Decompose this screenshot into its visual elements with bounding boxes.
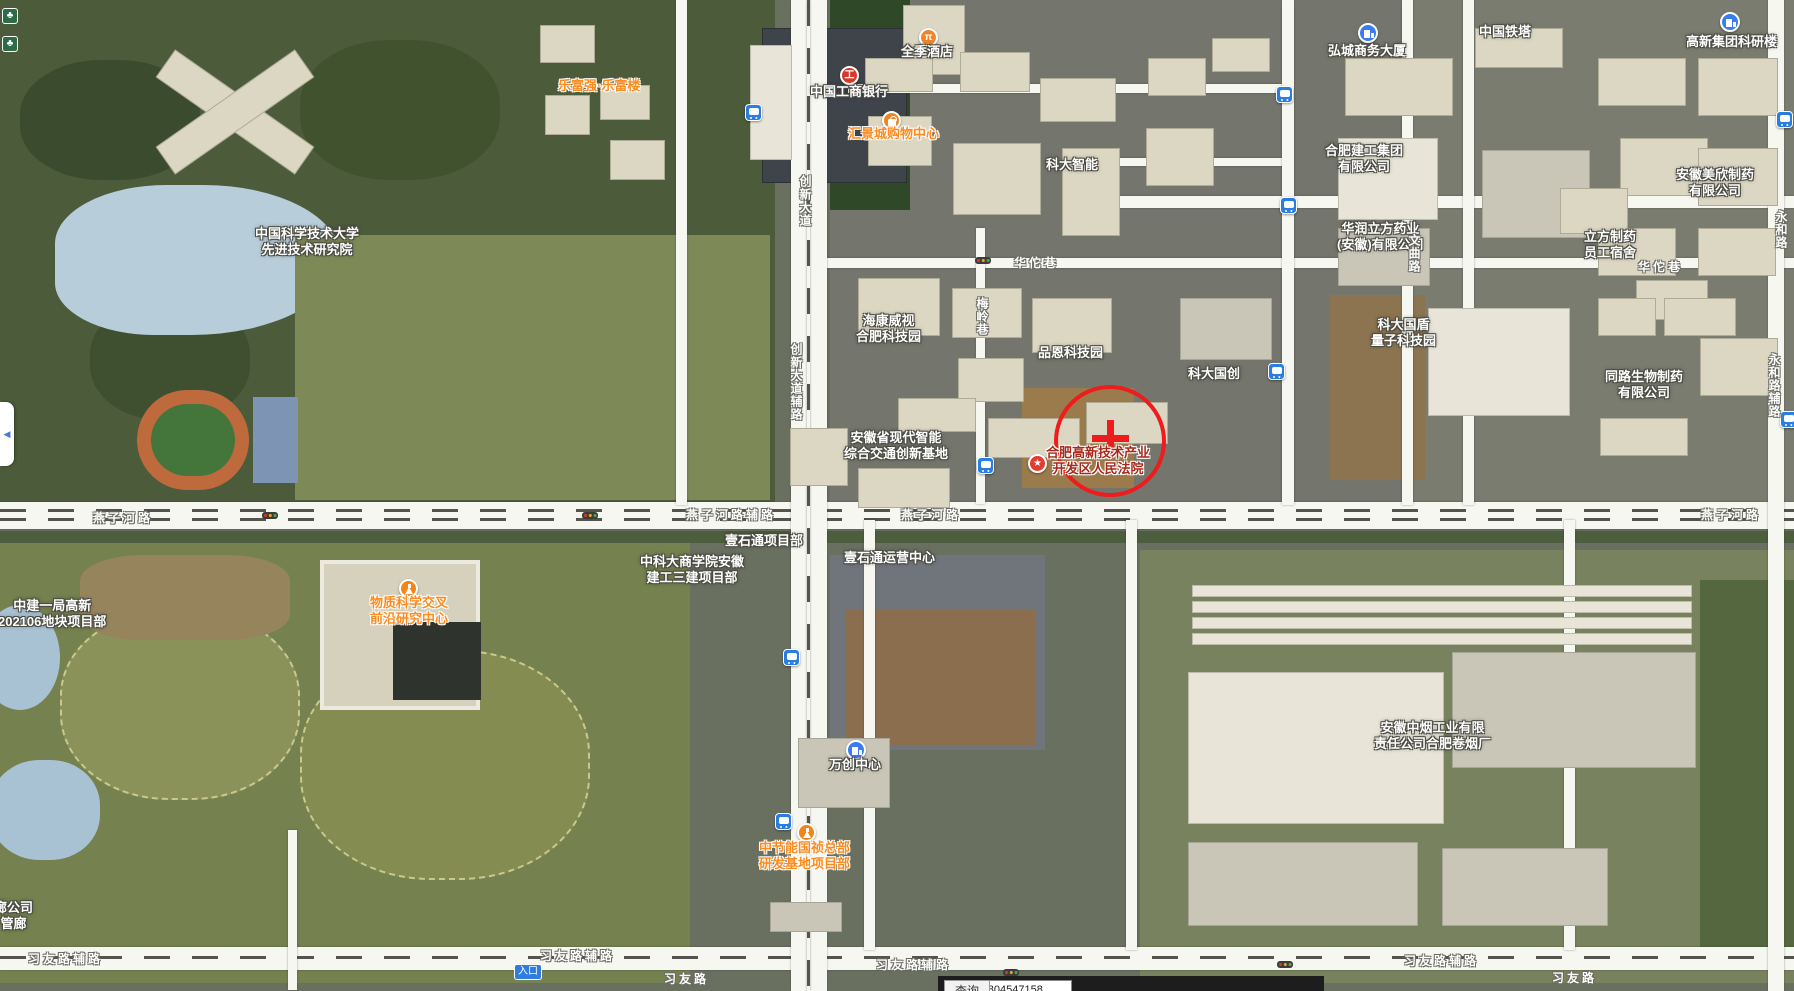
road-label: 燕子河路辅路 bbox=[686, 506, 776, 523]
traffic-light-icon bbox=[1003, 969, 1019, 976]
matter-science-core bbox=[393, 622, 481, 700]
poi-label: 壹石通项目部 bbox=[725, 533, 803, 549]
building bbox=[858, 468, 950, 508]
road-label: 华佗巷 bbox=[1014, 254, 1059, 271]
terrain-trees-strip bbox=[0, 531, 1794, 543]
poi-label: 合肥建工集团 有限公司 bbox=[1325, 143, 1403, 174]
road-label: 创新大道 bbox=[797, 175, 814, 227]
building bbox=[1560, 188, 1628, 234]
road-label: 梅岭巷 bbox=[974, 297, 991, 336]
factory-building bbox=[1442, 848, 1608, 926]
road-label: 永和路 bbox=[1773, 210, 1790, 249]
poi-label: 汇景城购物中心 bbox=[848, 126, 939, 142]
building bbox=[1600, 418, 1688, 456]
building bbox=[610, 140, 665, 180]
building-poi-icon[interactable] bbox=[1720, 12, 1740, 32]
road-label: 燕子河路 bbox=[901, 506, 961, 523]
building bbox=[1598, 58, 1686, 106]
poi-label: 立方制药 员工宿舍 bbox=[1584, 229, 1636, 260]
poi-label: 安徽省现代智能 综合交通创新基地 bbox=[844, 430, 948, 461]
building bbox=[798, 738, 890, 808]
building bbox=[1698, 58, 1778, 116]
bus-stop-icon[interactable] bbox=[1268, 363, 1285, 380]
traffic-light-icon bbox=[582, 512, 598, 519]
bus-stop-icon[interactable] bbox=[783, 649, 800, 666]
building bbox=[1664, 298, 1736, 336]
building bbox=[790, 428, 848, 486]
poi-label: 科大智能 bbox=[1046, 157, 1098, 173]
road-label: 习友路辅路 bbox=[540, 947, 615, 964]
road-label: 习友路辅路 bbox=[876, 956, 951, 973]
panel-collapse-button[interactable]: ◀ bbox=[0, 402, 14, 466]
poi-label: 物质科学交叉 前沿研究中心 bbox=[370, 595, 448, 626]
poi-label: 科大国盾 量子科技园 bbox=[1371, 317, 1436, 348]
bus-stop-icon[interactable] bbox=[977, 457, 994, 474]
poi-label: 中科大商学院安徽 建工三建项目部 bbox=[640, 554, 744, 585]
traffic-light-icon bbox=[1277, 961, 1293, 968]
poi-label: 中国科学技术大学 先进技术研究院 bbox=[255, 226, 359, 257]
road-label: 习友路 bbox=[1552, 969, 1597, 986]
building bbox=[1345, 58, 1453, 116]
traffic-light-icon bbox=[262, 512, 278, 519]
warehouse-row bbox=[1192, 601, 1692, 613]
poi-label: 中建一局高新 202106地块项目部 bbox=[0, 598, 106, 629]
park-dirt bbox=[80, 555, 290, 640]
poi-label: 中节能国祯总部 研发基地项目部 bbox=[759, 840, 850, 871]
poi-label: 壹石通运营中心 bbox=[844, 550, 935, 566]
poi-label: 弘城商务大厦 bbox=[1328, 43, 1406, 59]
query-button[interactable]: 查询 bbox=[944, 980, 990, 991]
building bbox=[958, 358, 1024, 402]
poi-label: 万创中心 bbox=[829, 757, 881, 773]
bus-stop-icon[interactable] bbox=[1276, 86, 1293, 103]
building bbox=[1598, 298, 1656, 336]
coordinate-bar: 经度 纬度 查询 bbox=[938, 976, 1324, 991]
building-poi-icon[interactable] bbox=[1358, 23, 1378, 43]
road-label: 习友路辅路 bbox=[28, 950, 103, 967]
bus-stop-icon[interactable] bbox=[745, 104, 762, 121]
road-label: 文曲路 bbox=[1406, 234, 1423, 273]
tree-poi-icon[interactable]: ♣ bbox=[2, 36, 18, 52]
track-infield bbox=[151, 404, 235, 476]
building bbox=[540, 25, 595, 63]
poi-label: 安徽中烟工业有限 责任公司合肥卷烟厂 bbox=[1374, 720, 1491, 751]
road-mid2 bbox=[1463, 0, 1474, 505]
terrain-lake bbox=[0, 760, 100, 860]
entrance-tag[interactable]: 入口 bbox=[514, 964, 542, 980]
bank-icon[interactable]: 工 bbox=[840, 66, 859, 85]
traffic-light-icon bbox=[975, 257, 991, 264]
building bbox=[960, 52, 1030, 92]
map-canvas[interactable]: π 工 ★ ♣ ♣ 入口 中国科学技术大学 先进技术研究院 全季酒店 中国工商银… bbox=[0, 0, 1794, 991]
poi-label: 同路生物制药 有限公司 bbox=[1605, 369, 1683, 400]
bus-stop-icon[interactable] bbox=[775, 813, 792, 830]
terrain-field bbox=[295, 235, 770, 500]
building bbox=[1698, 228, 1776, 276]
road-label: 习友路辅路 bbox=[1404, 952, 1479, 969]
warehouse-row bbox=[1192, 617, 1692, 629]
road-label: 华佗巷 bbox=[1638, 258, 1683, 275]
building bbox=[1146, 128, 1214, 186]
poi-label: 中国工商银行 bbox=[810, 84, 888, 100]
building bbox=[545, 95, 590, 135]
warehouse-row bbox=[1192, 585, 1692, 597]
poi-label: 高新集团科研楼 bbox=[1686, 34, 1777, 50]
bus-stop-icon[interactable] bbox=[1280, 197, 1297, 214]
poi-label: 安徽美欣制药 有限公司 bbox=[1676, 167, 1754, 198]
building bbox=[1148, 58, 1206, 96]
building bbox=[1180, 298, 1272, 360]
bus-stop-icon[interactable] bbox=[1776, 111, 1793, 128]
building bbox=[1428, 308, 1570, 416]
road-minor-v bbox=[676, 0, 687, 505]
road-label: 燕子河路 bbox=[93, 509, 153, 526]
poi-label: 乐富强·乐富楼 bbox=[558, 78, 640, 94]
building bbox=[1040, 78, 1116, 122]
building bbox=[898, 398, 976, 432]
poi-label: 海康威视 合肥科技园 bbox=[856, 313, 921, 344]
factory-building bbox=[1188, 842, 1418, 926]
building bbox=[1212, 38, 1270, 72]
building bbox=[750, 45, 792, 160]
road-label: 习友路 bbox=[664, 970, 709, 987]
terrain-trees bbox=[300, 40, 500, 180]
court-star-icon[interactable]: ★ bbox=[1028, 454, 1047, 473]
tree-poi-icon[interactable]: ♣ bbox=[2, 8, 18, 24]
poi-label: 中国铁塔 bbox=[1479, 24, 1531, 40]
poi-label: 品恩科技园 bbox=[1038, 345, 1103, 361]
road-park-edge bbox=[288, 830, 297, 990]
building bbox=[953, 143, 1041, 215]
road-east1 bbox=[1282, 0, 1294, 505]
warehouse-row bbox=[1192, 633, 1692, 645]
poi-label: 全季酒店 bbox=[901, 44, 953, 60]
road-label: 永和路辅路 bbox=[1766, 353, 1783, 418]
poi-label-clipped: 廊公司 管廊 bbox=[0, 900, 33, 931]
road-south-v bbox=[864, 520, 875, 950]
road-south-v bbox=[1126, 520, 1137, 950]
poi-label-court: 合肥高新技术产业 开发区人民法院 bbox=[1046, 445, 1150, 476]
building bbox=[770, 902, 842, 932]
basketball-courts bbox=[253, 397, 298, 483]
poi-label: 科大国创 bbox=[1188, 366, 1240, 382]
road-label: 创新大道辅路 bbox=[788, 343, 805, 421]
road-label: 燕子河路 bbox=[1701, 506, 1761, 523]
